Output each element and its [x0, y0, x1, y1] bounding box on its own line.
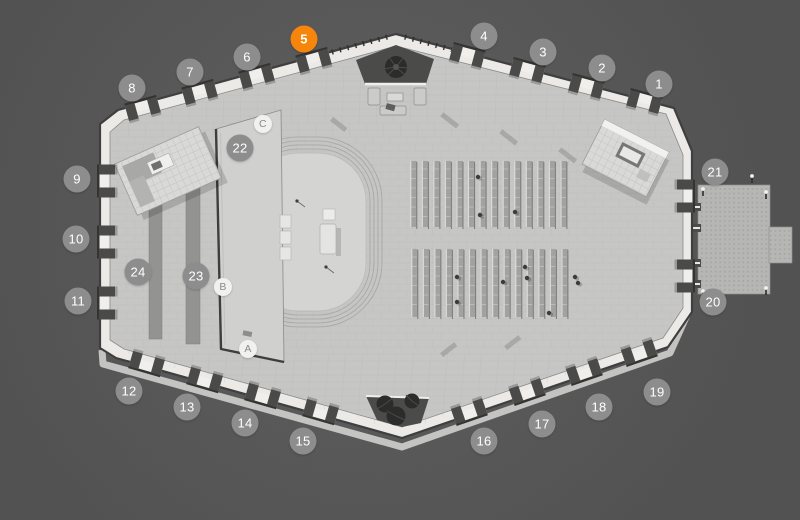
map-marker-10[interactable]: 10 [63, 226, 90, 253]
person-dot [513, 210, 517, 214]
marker-label: 15 [295, 435, 310, 448]
altar-shadow [336, 228, 341, 256]
map-marker-18[interactable]: 18 [586, 394, 613, 421]
entrance-porch [691, 174, 792, 298]
map-marker-3[interactable]: 3 [530, 39, 557, 66]
map-marker-c[interactable]: C [254, 115, 272, 133]
marker-label: 16 [476, 435, 491, 448]
mic-stand [324, 265, 327, 268]
map-marker-8[interactable]: 8 [119, 75, 146, 102]
map-marker-14[interactable]: 14 [232, 410, 259, 437]
marker-label: 12 [121, 385, 136, 398]
map-marker-23[interactable]: 23 [183, 263, 210, 290]
map-marker-6[interactable]: 6 [234, 44, 261, 71]
map-marker-7[interactable]: 7 [177, 59, 204, 86]
marker-label: 24 [130, 266, 145, 279]
lamp-top [750, 174, 754, 178]
marker-label: 6 [243, 51, 251, 64]
map-marker-11[interactable]: 11 [65, 288, 92, 315]
person-dot [523, 265, 527, 269]
map-marker-9[interactable]: 9 [64, 166, 91, 193]
map-marker-20[interactable]: 20 [700, 289, 727, 316]
marker-label: 17 [534, 418, 549, 431]
marker-label: 21 [707, 166, 722, 179]
marker-label: 4 [480, 30, 488, 43]
marker-label: 14 [237, 417, 252, 430]
marker-label: A [244, 344, 251, 355]
marker-label: 7 [186, 66, 194, 79]
armchair [368, 88, 380, 105]
map-marker-12[interactable]: 12 [116, 378, 143, 405]
person-dot [525, 276, 529, 280]
altar-stand [323, 209, 335, 220]
marker-label: 5 [300, 33, 308, 46]
map-marker-13[interactable]: 13 [174, 394, 201, 421]
person-dot [455, 300, 459, 304]
marker-label: 22 [232, 142, 247, 155]
chancel-steps [280, 215, 291, 260]
map-marker-19[interactable]: 19 [644, 379, 671, 406]
marker-label: 3 [539, 46, 547, 59]
map-marker-22[interactable]: 22 [227, 135, 254, 162]
marker-label: 19 [649, 386, 664, 399]
map-marker-15[interactable]: 15 [290, 428, 317, 455]
map-marker-4[interactable]: 4 [471, 23, 498, 50]
marker-label: 9 [73, 173, 81, 186]
marker-label: 11 [71, 295, 85, 308]
person-dot [576, 281, 580, 285]
map-marker-1[interactable]: 1 [646, 71, 673, 98]
marker-label: 10 [68, 233, 83, 246]
person-dot [501, 280, 505, 284]
marker-label: 1 [655, 78, 663, 91]
lamp-top [764, 286, 768, 290]
marker-label: 20 [705, 296, 720, 309]
marker-label: 23 [188, 270, 203, 283]
marker-label: 8 [128, 82, 136, 95]
marker-label: 2 [598, 62, 606, 75]
marker-label: 18 [591, 401, 606, 414]
person-dot [547, 311, 551, 315]
map-marker-b[interactable]: B [214, 278, 232, 296]
marker-label: B [219, 282, 226, 293]
lamp-top [701, 187, 705, 191]
map-marker-5[interactable]: 5 [291, 26, 318, 53]
lamp-top [764, 190, 768, 194]
altar [320, 224, 336, 254]
armchair [414, 88, 426, 105]
map-marker-17[interactable]: 17 [529, 411, 556, 438]
map-marker-a[interactable]: A [239, 340, 257, 358]
coffee-table [387, 93, 403, 101]
map-marker-2[interactable]: 2 [589, 55, 616, 82]
map-marker-24[interactable]: 24 [125, 259, 152, 286]
person-dot [455, 275, 459, 279]
marker-label: C [259, 119, 267, 130]
person-dot [573, 275, 577, 279]
floor-plan-rendering [0, 0, 800, 520]
person-dot [476, 175, 480, 179]
map-marker-16[interactable]: 16 [471, 428, 498, 455]
person-dot [478, 213, 482, 217]
map-marker-21[interactable]: 21 [702, 159, 729, 186]
mic-stand [295, 199, 298, 202]
venue-floor-plan: 123456789101112131415161718192021222324A… [0, 0, 800, 520]
marker-label: 13 [179, 401, 194, 414]
